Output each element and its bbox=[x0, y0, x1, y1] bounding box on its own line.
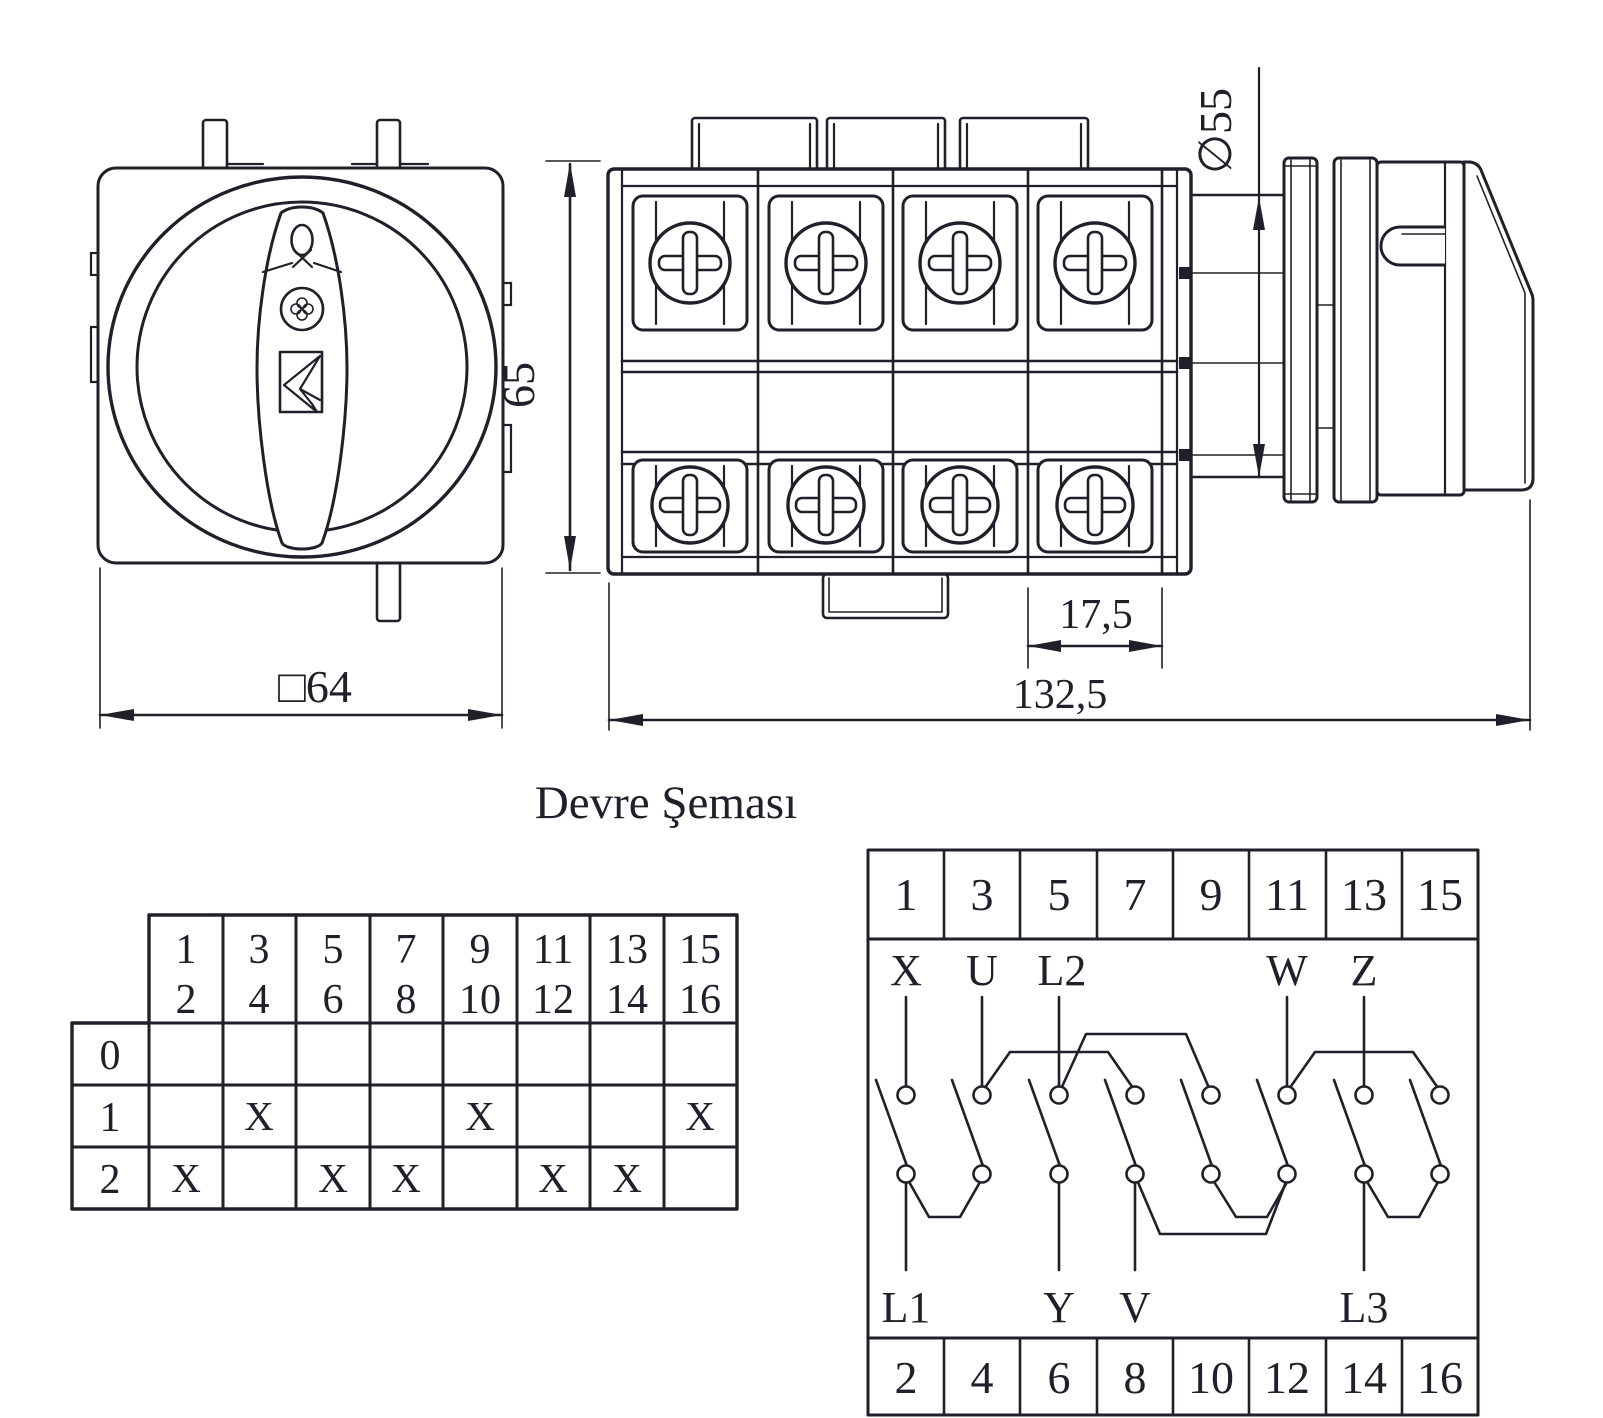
terminal-number: 15 bbox=[1417, 869, 1463, 920]
header-bottom: 8 bbox=[396, 977, 417, 1023]
phase-label: X bbox=[890, 946, 922, 995]
header-top: 9 bbox=[470, 927, 491, 973]
header-bottom: 4 bbox=[249, 977, 270, 1023]
terminal-number: 12 bbox=[1264, 1352, 1310, 1403]
phase-label: L1 bbox=[882, 1283, 931, 1332]
header-bottom: 10 bbox=[459, 977, 501, 1023]
phase-labels-top: X U L2 W Z bbox=[890, 946, 1377, 995]
dim-total-length-label: 132,5 bbox=[1013, 672, 1108, 718]
terminal-number: 11 bbox=[1265, 869, 1309, 920]
header-top: 5 bbox=[323, 927, 344, 973]
contact-mark: X bbox=[244, 1093, 274, 1139]
knob-handle bbox=[257, 207, 347, 549]
contact-mark: X bbox=[171, 1155, 201, 1201]
technical-drawing-page: □64 65 bbox=[0, 0, 1603, 1418]
phase-label: Y bbox=[1043, 1283, 1075, 1332]
circuit-title: Devre Şeması bbox=[535, 777, 797, 829]
wires bbox=[906, 997, 1364, 1270]
contact-mark: X bbox=[391, 1155, 421, 1201]
dim-height-label: 65 bbox=[493, 362, 544, 408]
drawing-canvas: □64 65 bbox=[0, 0, 1603, 1418]
contact-mark: X bbox=[465, 1093, 495, 1139]
handle-side bbox=[1464, 162, 1533, 490]
contact-mark: X bbox=[538, 1155, 568, 1201]
header-top: 7 bbox=[396, 927, 417, 973]
profile-view: ∅55 bbox=[1179, 68, 1533, 502]
header-bottom: 2 bbox=[176, 977, 197, 1023]
table-header: 1 2 3 4 5 6 7 8 9 10 11 12 13 14 15 16 bbox=[176, 927, 722, 1023]
knob-side bbox=[1377, 162, 1533, 495]
phase-label: L2 bbox=[1038, 946, 1087, 995]
dim-height: 65 bbox=[493, 161, 600, 573]
top-mounting-tabs bbox=[692, 118, 1088, 172]
header-top: 3 bbox=[249, 927, 270, 973]
phase-label: W bbox=[1266, 946, 1308, 995]
phase-label: V bbox=[1119, 1283, 1151, 1332]
dim-front-width-label: □64 bbox=[278, 661, 352, 712]
row-label: 0 bbox=[100, 1033, 121, 1079]
contact-mark: X bbox=[685, 1093, 715, 1139]
terminal-number: 13 bbox=[1341, 869, 1387, 920]
bottom-terminal-numbers: 2 4 6 8 10 12 14 16 bbox=[895, 1352, 1464, 1403]
terminal-number: 6 bbox=[1048, 1352, 1071, 1403]
dim-pitch-label: 17,5 bbox=[1059, 592, 1133, 638]
mounting-flange bbox=[1284, 158, 1377, 502]
terminal-number: 4 bbox=[971, 1352, 994, 1403]
terminal-number: 5 bbox=[1048, 869, 1071, 920]
terminal-number: 14 bbox=[1341, 1352, 1387, 1403]
switch-contacts bbox=[876, 1080, 1449, 1183]
header-top: 15 bbox=[679, 927, 721, 973]
header-bottom: 16 bbox=[679, 977, 721, 1023]
shaft-lines bbox=[1179, 195, 1284, 477]
phase-label: L3 bbox=[1340, 1283, 1389, 1332]
row-label: 2 bbox=[100, 1157, 121, 1203]
terminal-number: 7 bbox=[1124, 869, 1147, 920]
front-view: □64 bbox=[91, 120, 511, 728]
table-row-labels: 0 1 2 bbox=[100, 1033, 121, 1203]
wiring-diagram: 1 3 5 7 9 11 13 15 2 4 6 8 10 12 14 16 X… bbox=[868, 850, 1478, 1415]
contact-mark: X bbox=[612, 1155, 642, 1201]
terminal-number: 1 bbox=[895, 869, 918, 920]
terminal-number: 2 bbox=[895, 1352, 918, 1403]
header-bottom: 12 bbox=[532, 977, 574, 1023]
header-bottom: 6 bbox=[323, 977, 344, 1023]
header-top: 13 bbox=[606, 927, 648, 973]
phase-labels-bottom: L1 Y V L3 bbox=[882, 1283, 1389, 1332]
terminal-number: 10 bbox=[1188, 1352, 1234, 1403]
top-terminal-numbers: 1 3 5 7 9 11 13 15 bbox=[895, 869, 1464, 920]
terminal-number: 3 bbox=[971, 869, 994, 920]
terminal-number: 8 bbox=[1124, 1352, 1147, 1403]
terminal-number: 16 bbox=[1417, 1352, 1463, 1403]
padlock-slot bbox=[1381, 227, 1445, 265]
header-bottom: 14 bbox=[606, 977, 648, 1023]
switching-table: 1 2 3 4 5 6 7 8 9 10 11 12 13 14 15 16 0… bbox=[72, 915, 737, 1209]
terminal-number: 9 bbox=[1200, 869, 1223, 920]
phase-label: Z bbox=[1351, 946, 1378, 995]
dim-pitch: 17,5 bbox=[1028, 588, 1162, 668]
dim-knob-diameter-label: ∅55 bbox=[1190, 88, 1241, 174]
contact-mark: X bbox=[318, 1155, 348, 1201]
header-top: 1 bbox=[176, 927, 197, 973]
header-top: 11 bbox=[533, 927, 573, 973]
dim-front-width: □64 bbox=[100, 568, 502, 728]
bridge-links bbox=[908, 1034, 1438, 1234]
row-label: 1 bbox=[100, 1095, 121, 1141]
phase-label: U bbox=[966, 946, 998, 995]
